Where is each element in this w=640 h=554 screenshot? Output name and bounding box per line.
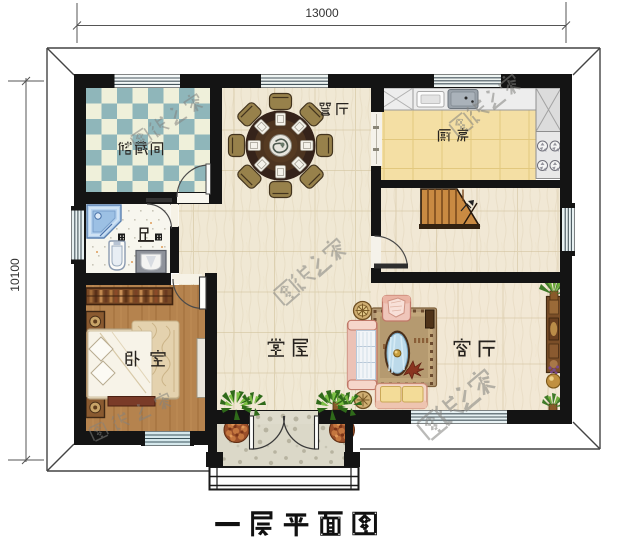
svg-text:10100: 10100 [8,258,22,292]
svg-text:13000: 13000 [305,6,339,20]
